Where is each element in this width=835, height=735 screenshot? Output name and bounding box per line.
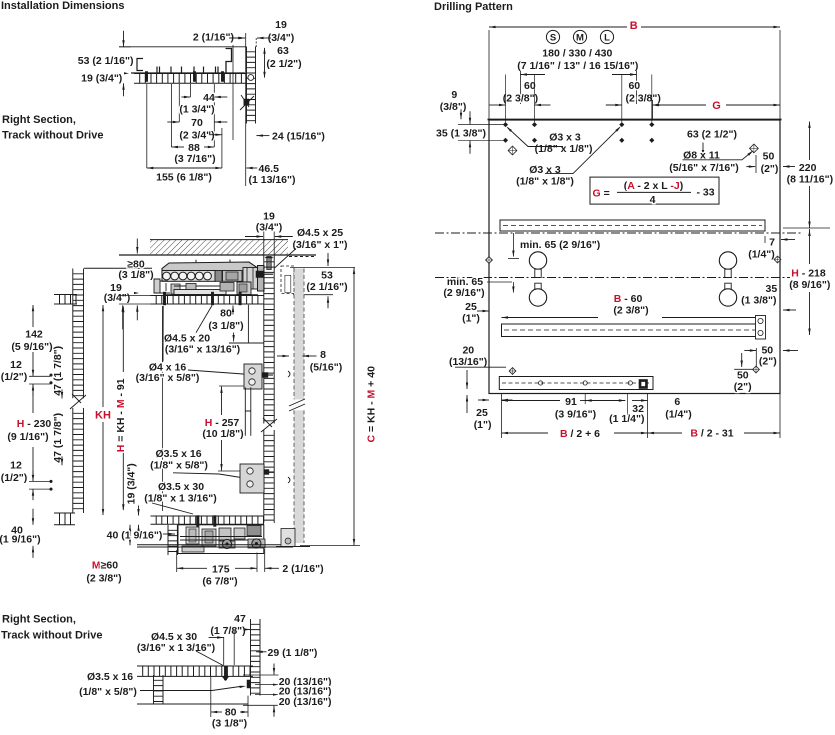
svg-text:(3/16" x 1 3/16"): (3/16" x 1 3/16") <box>137 642 215 654</box>
svg-text:(2"): (2") <box>759 356 777 368</box>
svg-text:Right Section,: Right Section, <box>2 614 76 626</box>
svg-text:Drilling Pattern: Drilling Pattern <box>434 1 513 13</box>
svg-text:35: 35 <box>766 283 778 295</box>
svg-text:180 / 330 / 430: 180 / 330 / 430 <box>542 48 612 60</box>
svg-text:19: 19 <box>275 19 287 31</box>
svg-text:(1"): (1") <box>474 419 492 431</box>
svg-text:B / 2 - 31: B / 2 - 31 <box>690 428 733 440</box>
svg-text:Track without Drive: Track without Drive <box>1 629 102 641</box>
svg-text:(3/4"): (3/4") <box>104 292 131 304</box>
svg-text:175: 175 <box>212 563 230 575</box>
svg-text:(1/8" x 5/8"): (1/8" x 5/8") <box>79 686 137 698</box>
svg-text:B / 2 + 6: B / 2 + 6 <box>560 428 600 440</box>
svg-text:63: 63 <box>277 45 289 57</box>
svg-text:(1 9/16"): (1 9/16") <box>0 533 41 545</box>
svg-text:(2"): (2") <box>734 381 752 393</box>
svg-text:(A - 2 x L -J): (A - 2 x L -J) <box>624 180 684 192</box>
svg-text:9: 9 <box>451 89 457 101</box>
svg-text:(6 7/8"): (6 7/8") <box>202 575 237 587</box>
svg-text:S: S <box>550 33 556 44</box>
svg-text:Ø4.5 x 25: Ø4.5 x 25 <box>297 227 343 239</box>
svg-text:(3 1/8"): (3 1/8") <box>208 320 243 332</box>
svg-text:25: 25 <box>476 407 488 419</box>
svg-text:25: 25 <box>465 301 477 313</box>
svg-text:Installation Dimensions: Installation Dimensions <box>1 0 124 12</box>
svg-text:(1/4"): (1/4") <box>748 248 775 260</box>
svg-text:G: G <box>712 100 721 112</box>
svg-text:(1 7/8"): (1 7/8") <box>210 625 245 637</box>
svg-text:20: 20 <box>462 344 474 356</box>
svg-text:B: B <box>630 20 638 32</box>
svg-text:(3 7/16"): (3 7/16") <box>174 153 215 165</box>
svg-text:(1/2"): (1/2") <box>1 371 28 383</box>
svg-text:Ø3.5 x 30: Ø3.5 x 30 <box>158 481 204 493</box>
svg-text:H = KH - M - 91: H = KH - M - 91 <box>115 378 127 452</box>
svg-text:80: 80 <box>220 307 232 319</box>
svg-text:(1 1/4"): (1 1/4") <box>609 413 644 425</box>
svg-text:L: L <box>604 33 610 44</box>
svg-text:40 (1 9/16"): 40 (1 9/16") <box>107 529 163 541</box>
svg-text:2 (1/16"): 2 (1/16") <box>193 31 234 43</box>
svg-text:H - 218: H - 218 <box>791 267 826 279</box>
svg-text:47 (1 7/8"): 47 (1 7/8") <box>52 346 64 396</box>
svg-text:(5 9/16"): (5 9/16") <box>11 341 52 353</box>
svg-text:(13/16"): (13/16") <box>449 356 487 368</box>
svg-text:6: 6 <box>674 396 680 408</box>
svg-text:(2 3/8"): (2 3/8") <box>86 573 121 585</box>
svg-text:70: 70 <box>191 117 203 129</box>
svg-text:(2 1/2"): (2 1/2") <box>266 58 301 70</box>
svg-text:(3 9/16"): (3 9/16") <box>555 409 596 421</box>
svg-text:155 (6 1/8"): 155 (6 1/8") <box>156 171 212 183</box>
svg-text:19 (3/4"): 19 (3/4") <box>81 72 122 84</box>
svg-text:Ø3.5 x 16: Ø3.5 x 16 <box>87 671 133 683</box>
svg-text:M≥60: M≥60 <box>92 559 118 571</box>
svg-text:44: 44 <box>203 92 215 104</box>
svg-text:(1/8" x 5/8"): (1/8" x 5/8") <box>150 459 208 471</box>
svg-text:8: 8 <box>320 349 326 361</box>
svg-text:91: 91 <box>565 396 577 408</box>
svg-text:(3/16" x 13/16"): (3/16" x 13/16") <box>165 343 240 355</box>
svg-text:53: 53 <box>321 269 333 281</box>
svg-text:C = KH - M + 40: C = KH - M + 40 <box>366 366 378 443</box>
svg-text:(8 9/16"): (8 9/16") <box>789 279 830 291</box>
svg-text:(3/16" x 5/8"): (3/16" x 5/8") <box>136 372 200 384</box>
svg-text:(3/4"): (3/4") <box>256 221 283 233</box>
svg-text:(2 3/8"): (2 3/8") <box>503 93 538 105</box>
svg-text:(2 3/4"): (2 3/4") <box>179 130 214 142</box>
svg-text:53 (2 1/16"): 53 (2 1/16") <box>78 55 134 67</box>
svg-text:KH: KH <box>95 409 111 421</box>
svg-text:min. 65: min. 65 <box>447 276 483 288</box>
svg-text:24 (15/16"): 24 (15/16") <box>272 130 325 142</box>
svg-text:47 (1 7/8"): 47 (1 7/8") <box>52 413 64 463</box>
svg-text:29 (1 1/8"): 29 (1 1/8") <box>268 647 318 659</box>
svg-text:M: M <box>576 33 584 44</box>
svg-text:(5/16" x 7/16"): (5/16" x 7/16") <box>669 162 739 174</box>
svg-text:(2 3/8"): (2 3/8") <box>626 93 661 105</box>
svg-text:Right Section,: Right Section, <box>2 114 76 126</box>
svg-text:(3/4"): (3/4") <box>268 32 295 44</box>
svg-text:B - 60: B - 60 <box>614 293 643 305</box>
svg-text:- 33: - 33 <box>696 186 714 198</box>
svg-text:60: 60 <box>524 80 536 92</box>
svg-text:(3 1/8"): (3 1/8") <box>118 269 153 281</box>
svg-text:(7 1/16" / 13" / 16 15/16"): (7 1/16" / 13" / 16 15/16") <box>517 60 638 72</box>
svg-text:2 (1/16"): 2 (1/16") <box>282 563 323 575</box>
svg-text:7: 7 <box>769 236 775 248</box>
svg-text:(2 1/16"): (2 1/16") <box>306 281 347 293</box>
svg-text:(10 1/8"): (10 1/8") <box>202 428 243 440</box>
svg-text:(2 3/8"): (2 3/8") <box>613 305 648 317</box>
svg-text:(5/16"): (5/16") <box>310 361 342 373</box>
svg-text:G =: G = <box>593 188 610 200</box>
svg-text:(1/8" x 1 3/16"): (1/8" x 1 3/16") <box>144 492 216 504</box>
svg-text:50: 50 <box>737 370 749 382</box>
svg-text:19 (3/4"): 19 (3/4") <box>126 463 138 504</box>
svg-text:(1/4"): (1/4") <box>665 409 692 421</box>
svg-text:(2"): (2") <box>761 163 779 175</box>
svg-text:60: 60 <box>628 80 640 92</box>
svg-text:(3 1/8"): (3 1/8") <box>212 717 247 729</box>
svg-text:H - 230: H - 230 <box>17 418 52 430</box>
svg-text:(1 13/16"): (1 13/16") <box>248 174 295 186</box>
svg-text:(8 11/16"): (8 11/16") <box>787 174 833 186</box>
svg-text:50: 50 <box>763 150 775 162</box>
svg-text:(3/8"): (3/8") <box>440 101 467 113</box>
svg-text:47: 47 <box>234 613 246 625</box>
svg-text:12: 12 <box>10 359 22 371</box>
svg-text:220: 220 <box>799 162 817 174</box>
svg-text:63 (2 1/2"): 63 (2 1/2") <box>687 129 737 141</box>
svg-text:142: 142 <box>25 329 43 341</box>
svg-text:12: 12 <box>10 460 22 472</box>
svg-text:35 (1 3/8"): 35 (1 3/8") <box>436 127 486 139</box>
svg-text:4: 4 <box>650 194 656 206</box>
svg-text:(1/8" x 1/8"): (1/8" x 1/8") <box>516 175 574 187</box>
svg-text:(9 1/16"): (9 1/16") <box>7 431 48 443</box>
svg-text:(1 3/4"): (1 3/4") <box>179 104 214 116</box>
svg-text:Track without Drive: Track without Drive <box>2 129 103 141</box>
svg-text:(1/2"): (1/2") <box>1 472 28 484</box>
svg-text:Ø3.5 x 16: Ø3.5 x 16 <box>155 448 201 460</box>
svg-text:(1/8" x 1/8"): (1/8" x 1/8") <box>535 143 593 155</box>
svg-text:(1"): (1") <box>462 312 480 324</box>
svg-text:(2 9/16"): (2 9/16") <box>443 287 484 299</box>
svg-text:(3/16" x 1"): (3/16" x 1") <box>293 239 348 251</box>
svg-text:(1 3/8"): (1 3/8") <box>741 295 776 307</box>
svg-text:Ø3 x 3: Ø3 x 3 <box>549 131 581 143</box>
svg-text:min. 65 (2 9/16"): min. 65 (2 9/16") <box>520 239 600 251</box>
svg-text:20 (13/16"): 20 (13/16") <box>279 696 332 708</box>
